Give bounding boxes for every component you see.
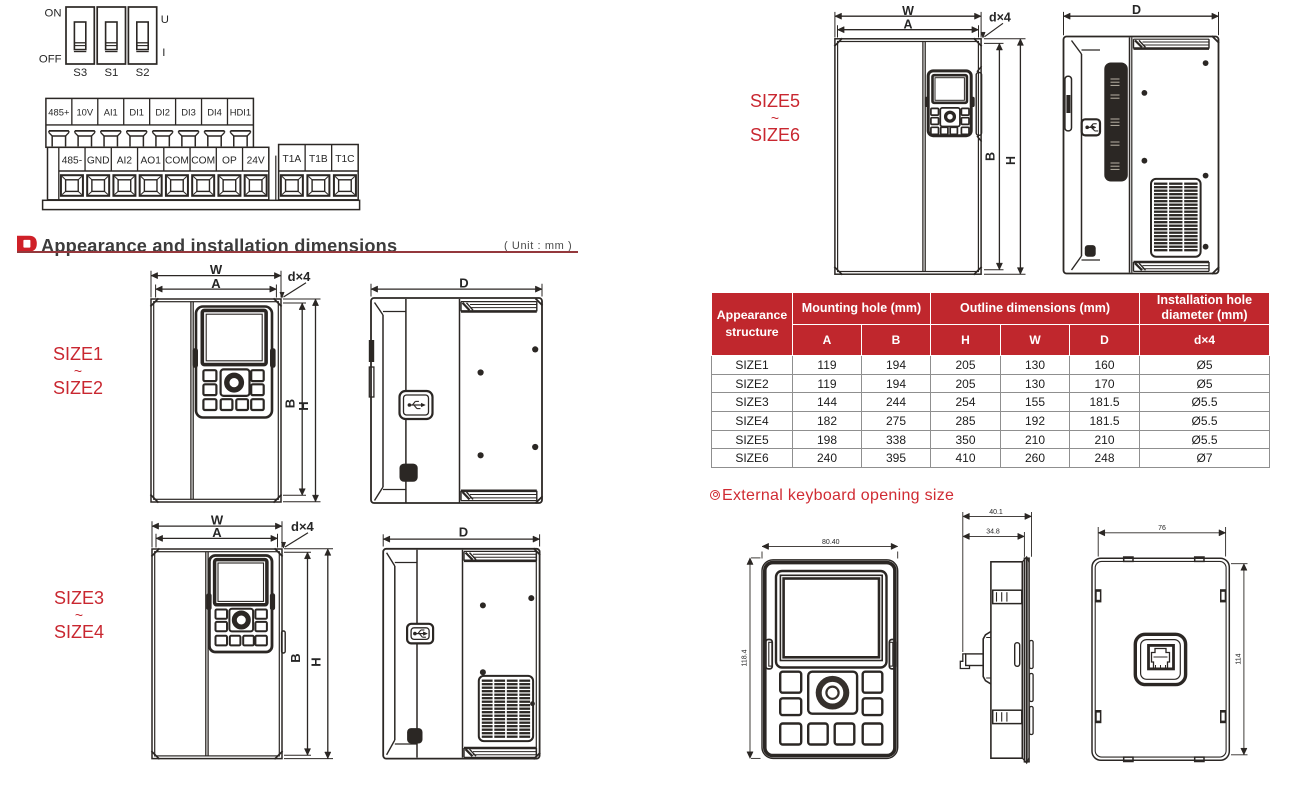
svg-text:H: H bbox=[309, 657, 324, 666]
svg-text:B: B bbox=[282, 399, 297, 408]
svg-text:HDI1: HDI1 bbox=[230, 107, 251, 118]
svg-text:DI4: DI4 bbox=[207, 107, 222, 118]
svg-text:T1C: T1C bbox=[335, 154, 354, 165]
svg-text:D: D bbox=[459, 524, 468, 539]
svg-text:B: B bbox=[984, 152, 998, 161]
svg-text:10V: 10V bbox=[76, 107, 93, 118]
svg-text:GND: GND bbox=[87, 155, 110, 166]
svg-text:A: A bbox=[212, 525, 222, 540]
svg-text:76: 76 bbox=[1158, 525, 1166, 532]
svg-text:d×4: d×4 bbox=[291, 519, 315, 534]
svg-text:40.1: 40.1 bbox=[989, 509, 1003, 516]
svg-text:485+: 485+ bbox=[48, 107, 70, 118]
svg-text:d×4: d×4 bbox=[989, 11, 1011, 25]
svg-text:COM: COM bbox=[191, 155, 215, 166]
svg-text:485-: 485- bbox=[62, 155, 82, 166]
svg-text:T1A: T1A bbox=[283, 154, 302, 165]
svg-text:U: U bbox=[161, 14, 169, 26]
svg-text:H: H bbox=[296, 401, 311, 410]
svg-text:114: 114 bbox=[1235, 653, 1242, 664]
svg-text:A: A bbox=[903, 18, 912, 32]
svg-text:B: B bbox=[288, 653, 303, 662]
svg-text:118.4: 118.4 bbox=[742, 649, 749, 666]
svg-text:T1B: T1B bbox=[309, 154, 328, 165]
svg-text:S1: S1 bbox=[104, 67, 118, 79]
svg-text:H: H bbox=[1004, 156, 1018, 165]
svg-text:AI1: AI1 bbox=[104, 107, 118, 118]
svg-text:d×4: d×4 bbox=[288, 269, 312, 284]
svg-text:D: D bbox=[459, 275, 468, 290]
svg-text:OP: OP bbox=[222, 155, 237, 166]
svg-text:COM: COM bbox=[165, 155, 189, 166]
svg-text:OFF: OFF bbox=[39, 53, 62, 65]
svg-text:AI2: AI2 bbox=[117, 155, 133, 166]
svg-text:A: A bbox=[211, 276, 221, 291]
svg-text:80.40: 80.40 bbox=[822, 539, 840, 546]
svg-text:DI1: DI1 bbox=[129, 107, 144, 118]
svg-text:AO1: AO1 bbox=[140, 155, 161, 166]
svg-text:DI3: DI3 bbox=[181, 107, 196, 118]
svg-text:34.8: 34.8 bbox=[986, 529, 1000, 536]
svg-text:D: D bbox=[1132, 3, 1141, 17]
svg-text:S3: S3 bbox=[73, 67, 87, 79]
svg-text:24V: 24V bbox=[247, 155, 265, 166]
svg-text:W: W bbox=[902, 4, 914, 18]
svg-text:ON: ON bbox=[45, 8, 62, 20]
svg-text:I: I bbox=[162, 47, 165, 59]
svg-text:DI2: DI2 bbox=[155, 107, 170, 118]
svg-text:S2: S2 bbox=[136, 67, 150, 79]
